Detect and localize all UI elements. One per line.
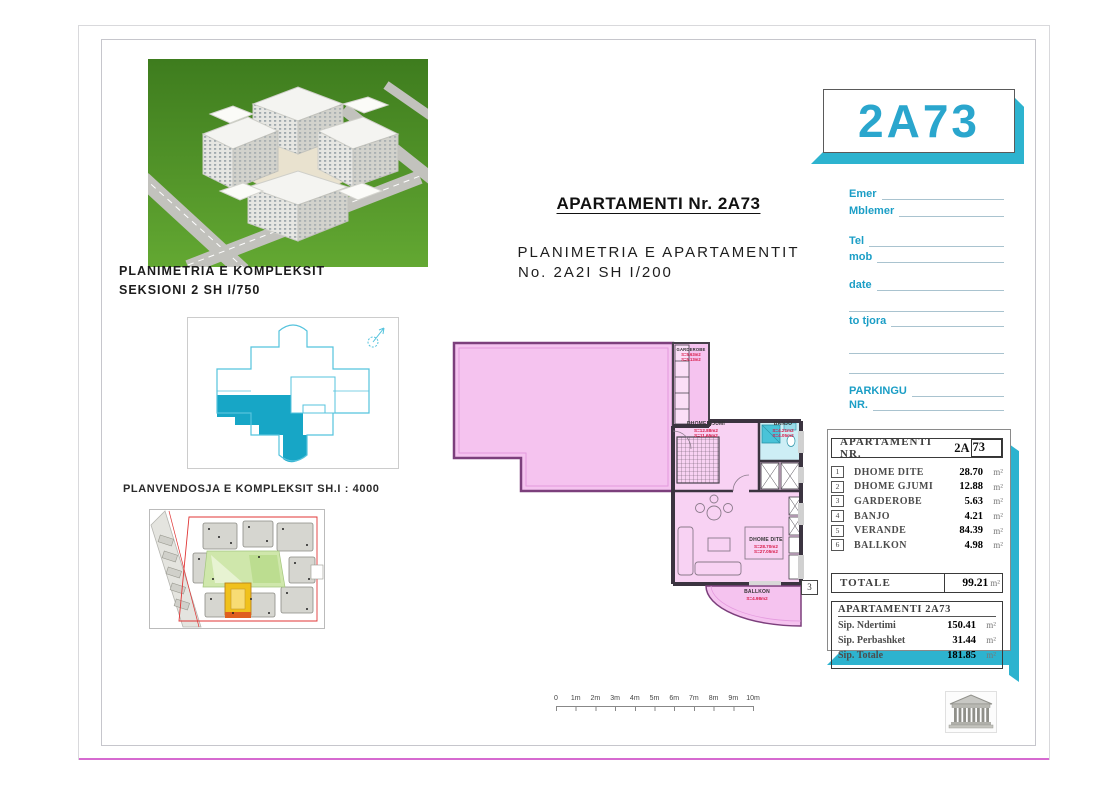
form-line [877,278,1004,291]
table1-header: APARTAMENTI NR. 2A73 [831,438,1003,458]
form-row-blank [849,299,1004,312]
verande-area [454,343,673,491]
table1-header-label: APARTAMENTI NR. [840,436,940,460]
form-label: Emer [849,188,877,200]
drawing-sheet: PLANIMETRIA E KOMPLEKSIT SEKSIONI 2 SH I… [78,25,1050,760]
form-row-mob: mob [849,250,1004,263]
form-line [882,187,1004,200]
room-label-dhome-gjumi: DHOME GJUMI S=12.88m2 S=11.65m2 [675,422,737,438]
site-plan-caption: PLANVENDOSJA E KOMPLEKSIT SH.I : 4000 [123,483,380,495]
page-subtitle-scale: No. 2A2I SH I/200 [456,264,861,281]
page-bottom-edge [79,758,1049,760]
table-row: 6BALLKON4.98m² [831,538,1003,553]
unit-code-boxed: 73 [971,439,1003,457]
form-row-te-tjera: to tjora [849,314,1004,327]
form-label: Tel [849,235,864,247]
architect-logo-icon [945,691,997,733]
table-row: 4BANJO4.21m² [831,509,1003,524]
unit-code-box: 2A73 [823,89,1015,153]
form-line [849,299,1004,312]
site-plan [149,509,325,629]
room-label-banjo: BANJO S=4.21m2 S=4.05m2 [765,422,801,438]
table2: APARTAMENTI 2A73 Sip. Ndertimi150.41m² S… [831,601,1003,669]
form-label: NR. [849,399,868,411]
form-row-parkingu: PARKINGU [849,384,1004,397]
table-row: Sip. Perbashket31.44m² [838,633,996,647]
table-row: 1DHOME DITE28.70m² [831,465,1003,480]
title-block: APARTAMENTI Nr. 2A73 PLANIMETRIA E APART… [456,194,861,281]
scale-tick: 10m [744,695,762,702]
scale-ruler [556,706,754,711]
unit-code: 2A73 [858,94,980,148]
form-line [899,204,1004,217]
scale-tick: 4m [626,695,644,702]
scale-tick: 3m [606,695,624,702]
scale-tick: 7m [685,695,703,702]
form-label: mob [849,251,872,263]
page-subtitle: PLANIMETRIA E APARTAMENTIT [456,244,861,261]
scale-tick: 9m [724,695,742,702]
form-row-blank [849,361,1004,374]
form-label: Mblemer [849,205,894,217]
form-line [849,341,1004,354]
form-line [849,361,1004,374]
table1-rows: 1DHOME DITE28.70m² 2DHOME GJUMI12.88m² 3… [831,465,1003,553]
table1-header-value: 2A73 [954,439,1002,457]
form-row-tel: Tel [849,234,1004,247]
scale-tick: 2m [586,695,604,702]
scale-bar: 0 1m 2m 3m 4m 5m 6m 7m 8m 9m 10m [552,695,772,715]
form-line [873,398,1004,411]
form-row-nr: NR. [849,398,1004,411]
table2-header: APARTAMENTI 2A73 [838,604,996,617]
dhome-gjumi-bed [677,437,719,483]
total-value-box: 99.21 m² [944,574,1002,592]
table1-total-row: TOTALE 99.21 m² [831,573,1003,593]
complex-plan-caption-line2: SEKSIONI 2 SH I/750 [119,281,325,300]
form-row-mblemer: Mblemer [849,204,1004,217]
form-line [877,250,1004,263]
form-row-emer: Emer [849,187,1004,200]
form-label: PARKINGU [849,385,907,397]
floor-plan-drawing [449,331,821,629]
area-tables: APARTAMENTI NR. 2A73 1DHOME DITE28.70m² … [827,429,1011,651]
form-label: to tjora [849,315,886,327]
scale-tick: 6m [665,695,683,702]
unit-code-prefix: 2A [954,441,969,456]
total-label: TOTALE [832,577,944,589]
form-label: date [849,279,872,291]
scale-tick: 8m [705,695,723,702]
form-line [891,314,1004,327]
form-row-blank [849,341,1004,354]
room-label-garderobe: GARDEROBE S=5.63m2 S=5.13m2 [671,348,711,362]
scale-tick: 1m [567,695,585,702]
contact-form: Emer Mblemer Tel mob date to tjora PARKI… [849,187,1004,411]
page-title: APARTAMENTI Nr. 2A73 [557,194,761,214]
plan-marker-3: 3 [801,580,818,595]
table-row: Sip. Totale181.85m² [838,648,996,662]
room-label-dhome-dite: DHOME DITE S=28.70m2 S=27.05m2 [739,538,793,554]
section-key-plan [187,317,399,469]
form-line [912,384,1004,397]
complex-plan-caption-line1: PLANIMETRIA E KOMPLEKSIT [119,262,325,281]
form-line [869,234,1004,247]
table-row: 2DHOME GJUMI12.88m² [831,480,1003,495]
table-row: 5VERANDE84.39m² [831,523,1003,538]
table-row: 3GARDEROBE5.63m² [831,494,1003,509]
scale-tick: 5m [646,695,664,702]
room-label-ballkon: BALLKON S=4.98m2 [733,590,781,601]
apartment-floor-plan: GARDEROBE S=5.63m2 S=5.13m2 DHOME GJUMI … [449,331,821,629]
form-row-date: date [849,278,1004,291]
complex-plan-caption: PLANIMETRIA E KOMPLEKSIT SEKSIONI 2 SH I… [119,262,325,300]
table-row: Sip. Ndertimi150.41m² [838,618,996,632]
complex-3d-render [148,59,428,267]
scale-tick: 0 [547,695,565,702]
